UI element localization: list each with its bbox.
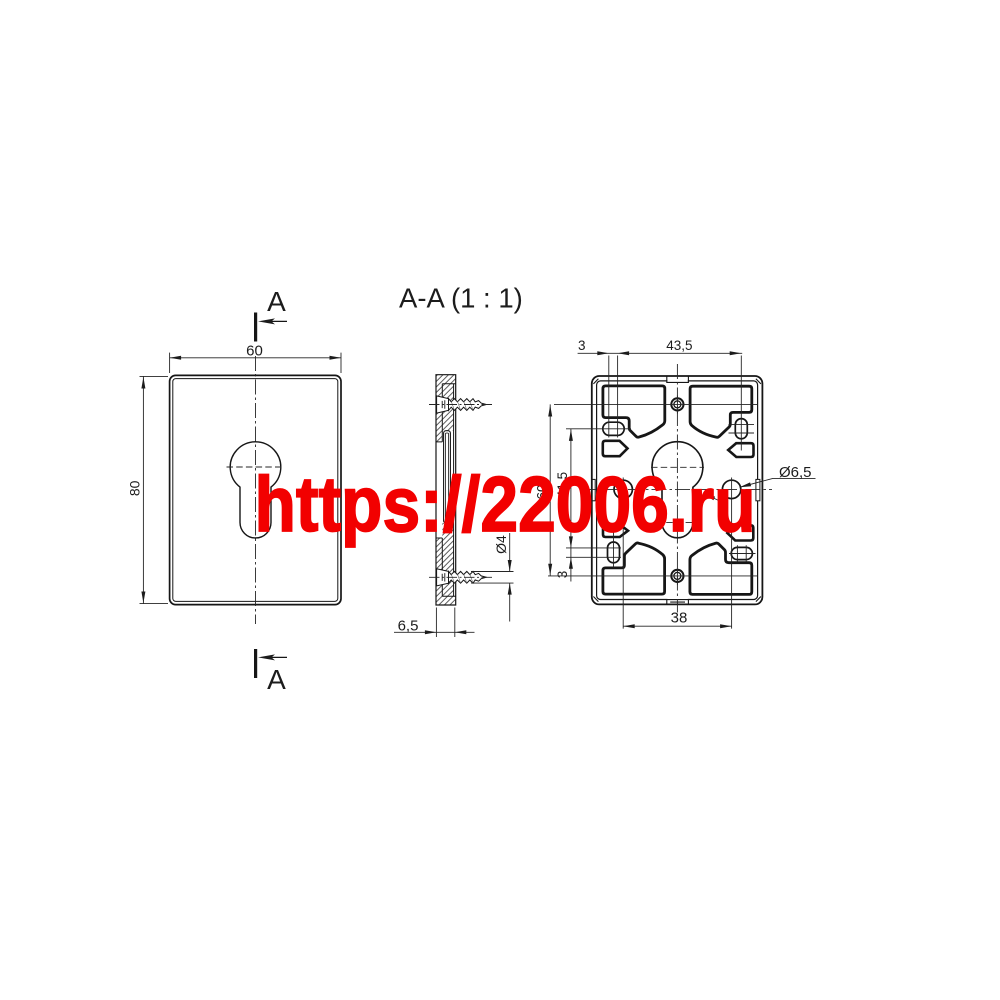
svg-text:A-A (1 : 1): A-A (1 : 1)	[399, 283, 523, 314]
svg-text:3: 3	[578, 338, 586, 353]
svg-text:A: A	[267, 664, 286, 695]
svg-text:3: 3	[555, 571, 570, 579]
svg-text:43,5: 43,5	[666, 338, 692, 353]
svg-text:80: 80	[126, 480, 142, 496]
svg-text:38: 38	[671, 609, 688, 626]
svg-text:https://22006.ru: https://22006.ru	[255, 460, 756, 548]
svg-text:A: A	[267, 286, 286, 317]
svg-text:60: 60	[246, 343, 263, 360]
svg-text:Ø6,5: Ø6,5	[779, 464, 812, 481]
svg-text:6,5: 6,5	[398, 618, 419, 635]
